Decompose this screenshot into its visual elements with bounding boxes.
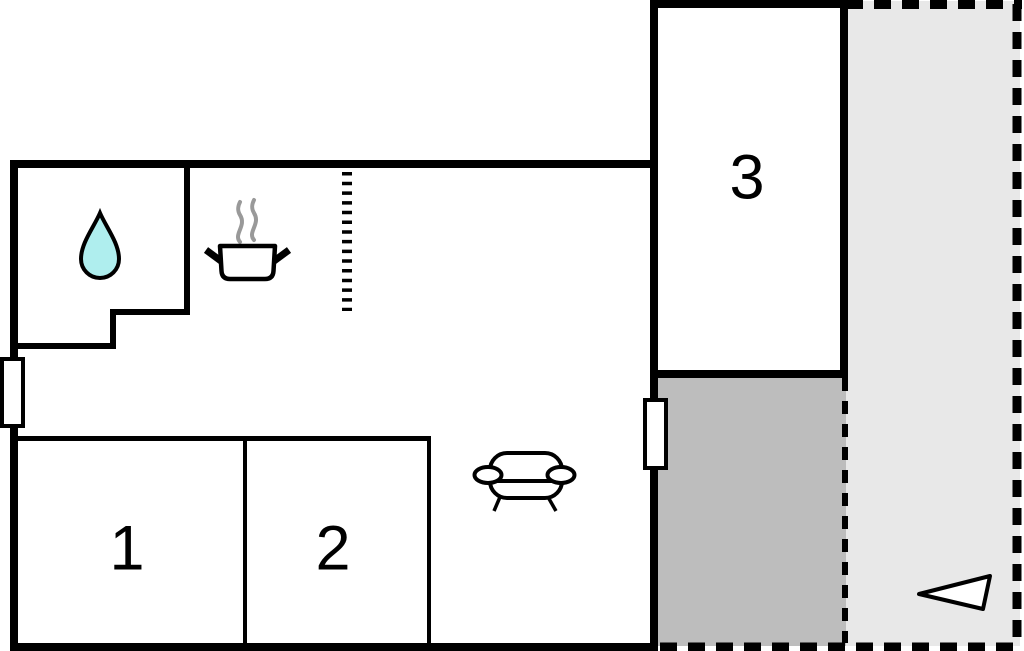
sofa-leg-left (494, 497, 500, 511)
sofa-icon (475, 453, 575, 511)
steam-icon (238, 202, 242, 242)
steam-icon (252, 200, 256, 240)
sofa-armrest-right (548, 467, 575, 483)
sofa-armrest-left (475, 467, 502, 483)
terrace-dashed-boundary (660, 4, 1022, 647)
plan-overlay (0, 0, 1024, 651)
pot-body (220, 246, 275, 279)
direction-arrow-icon (919, 576, 990, 609)
cooking-pot-icon (206, 200, 289, 279)
water-drop-icon (81, 213, 119, 278)
floorplan-canvas: 1 2 3 (0, 0, 1024, 651)
